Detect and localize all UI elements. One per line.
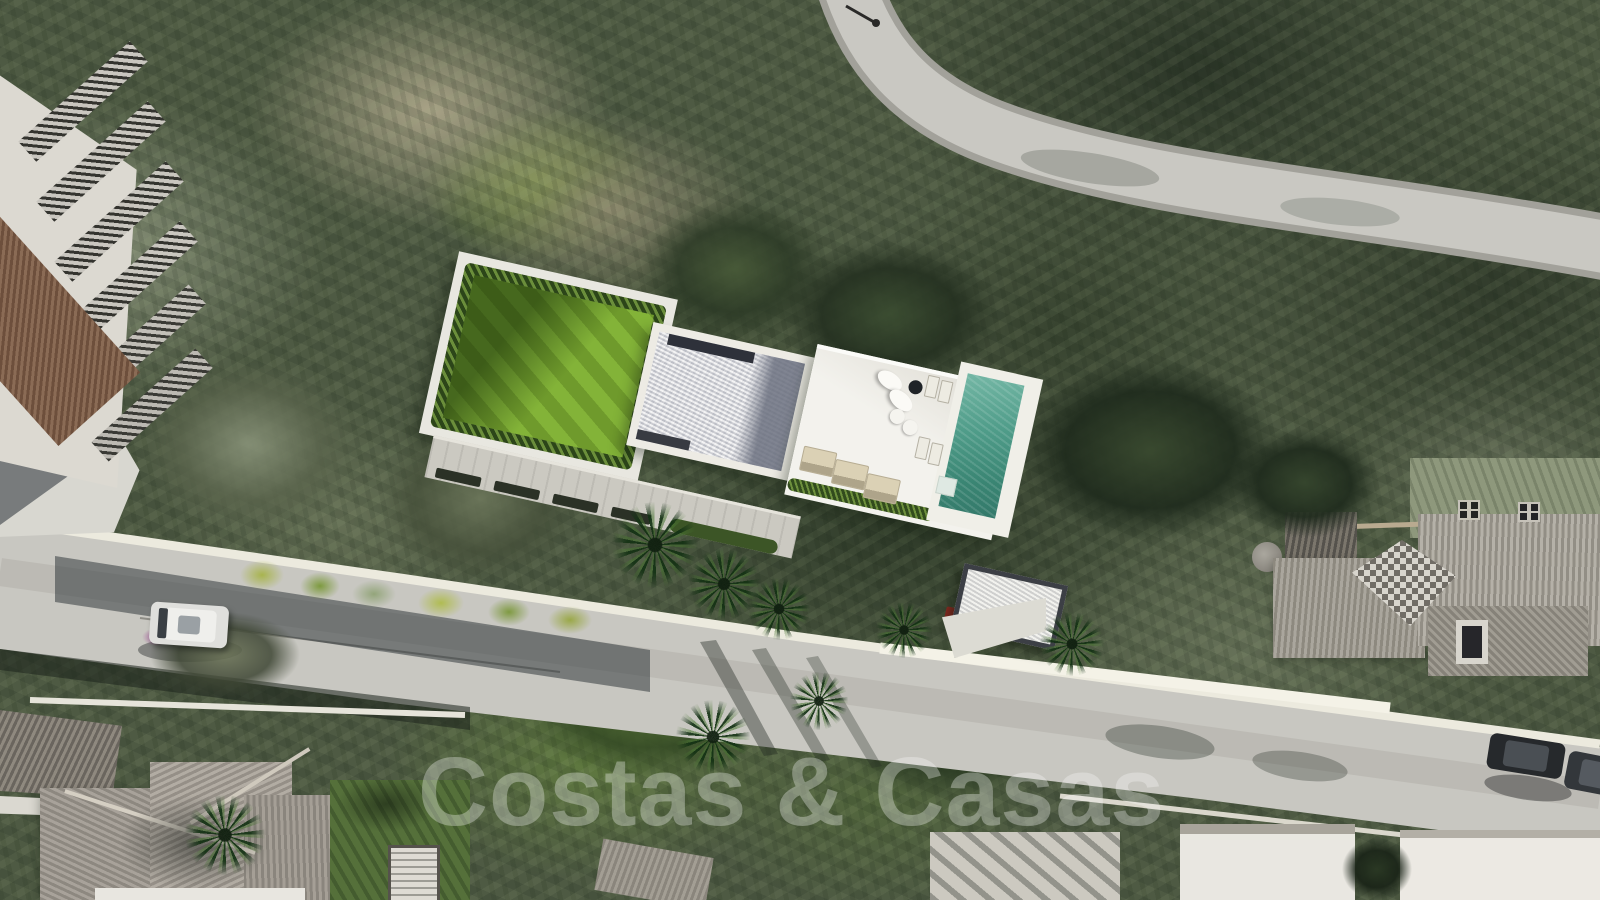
tile-roof-lower (1428, 606, 1588, 676)
planter-box (493, 481, 540, 501)
shrub (352, 580, 396, 608)
white-car (149, 601, 230, 648)
watermark: Costas & Casas (418, 736, 1165, 848)
pool-step (935, 475, 957, 497)
planter-box (552, 494, 599, 514)
planter-box (435, 468, 482, 488)
dormer-glass (1462, 626, 1482, 658)
aerial-photo: Costas & Casas (0, 0, 1600, 900)
pergola-structure (388, 845, 440, 900)
neighbour-house-right (1240, 458, 1600, 703)
hedge-bush (1342, 838, 1412, 900)
top-road (846, 0, 1600, 248)
car-sunroof (177, 615, 200, 634)
palm-tree (1040, 612, 1104, 676)
chimney-cluster (1518, 502, 1540, 522)
white-wall (95, 888, 305, 900)
tree (1230, 428, 1380, 538)
shrub (240, 560, 284, 590)
palm-tree (876, 602, 932, 658)
shrub (418, 588, 464, 618)
palm-tree (185, 795, 265, 875)
shrub (300, 572, 340, 600)
tile-roof (0, 710, 122, 798)
white-house (1180, 824, 1355, 900)
car-roof (1578, 759, 1600, 792)
shrub (548, 606, 592, 634)
palm-tree (612, 502, 698, 588)
palm-tree (748, 578, 810, 640)
white-house (1400, 830, 1600, 900)
chimney-cluster (1458, 500, 1480, 520)
shrub (488, 598, 530, 626)
car-roof (1502, 740, 1550, 773)
palm-tree (790, 672, 848, 730)
